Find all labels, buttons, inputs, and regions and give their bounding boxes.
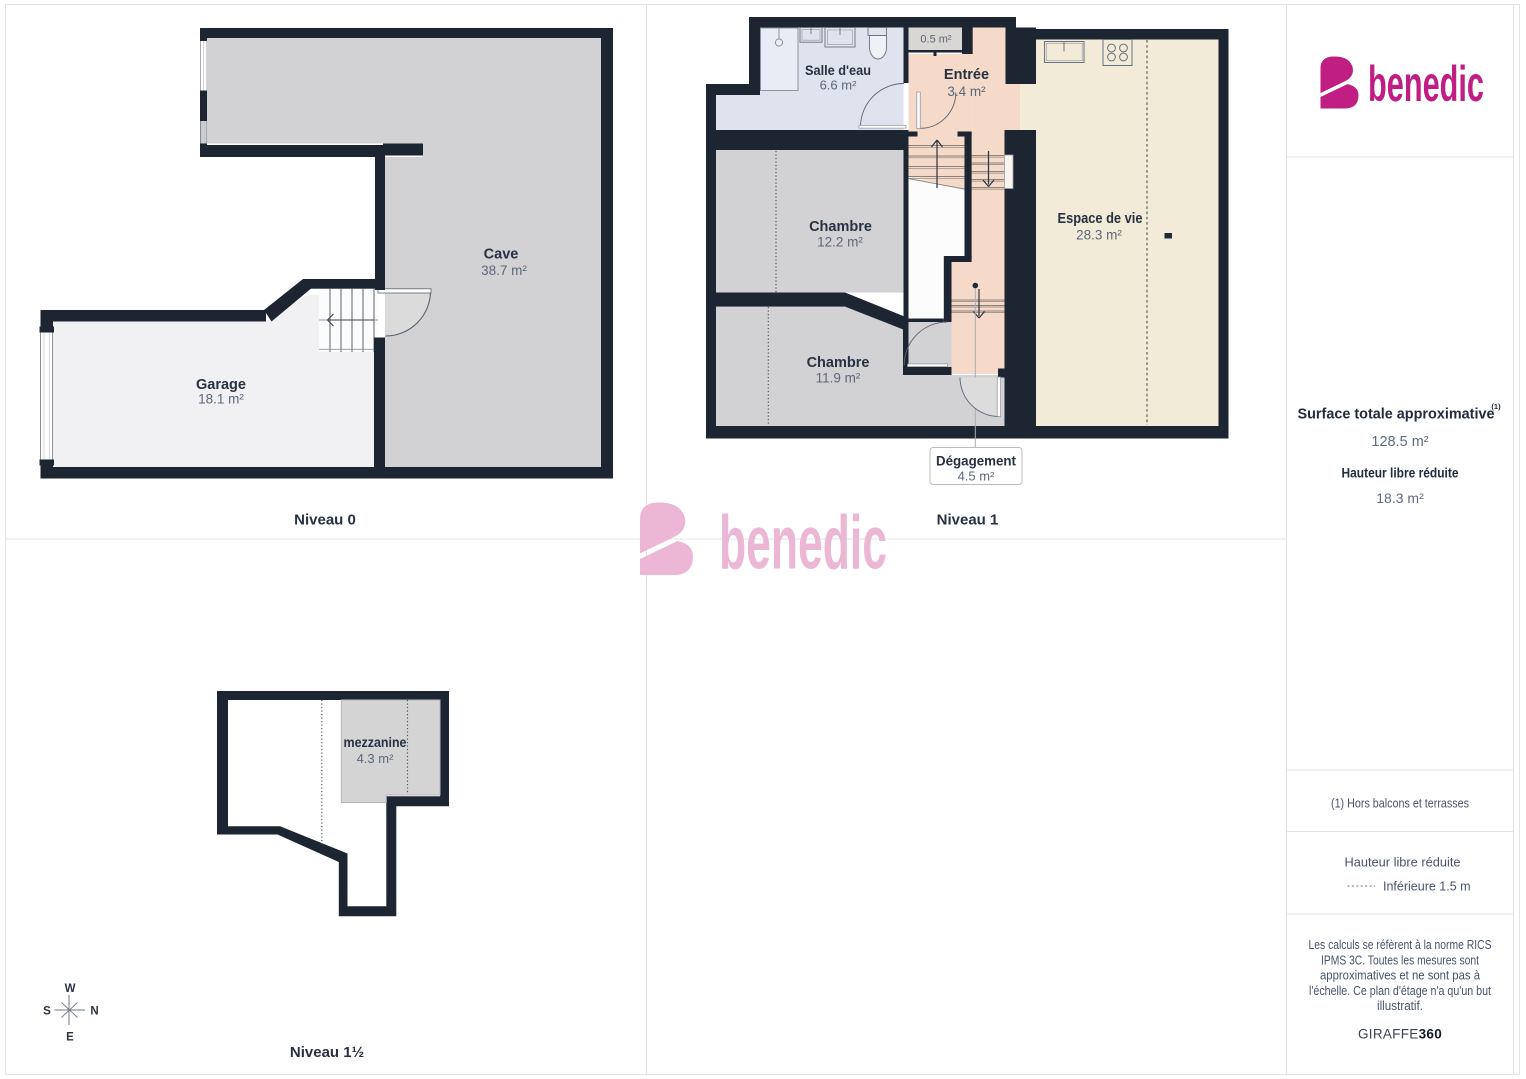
svg-text:18.3 m²: 18.3 m²	[1376, 490, 1424, 506]
svg-text:Niveau 1½: Niveau 1½	[290, 1044, 364, 1061]
svg-text:38.7 m²: 38.7 m²	[481, 263, 527, 278]
svg-text:128.5 m²: 128.5 m²	[1371, 434, 1428, 450]
svg-text:28.3 m²: 28.3 m²	[1076, 228, 1122, 243]
svg-text:Niveau 0: Niveau 0	[294, 512, 356, 529]
svg-text:Salle d'eau: Salle d'eau	[805, 63, 871, 78]
svg-text:3.4 m²: 3.4 m²	[947, 84, 986, 99]
svg-text:Niveau 1: Niveau 1	[937, 512, 999, 529]
svg-text:Espace de vie: Espace de vie	[1058, 211, 1143, 227]
svg-text:6.6 m²: 6.6 m²	[820, 78, 858, 93]
svg-text:(1) Hors balcons et terrasses: (1) Hors balcons et terrasses	[1331, 797, 1469, 811]
svg-text:benedic: benedic	[1368, 56, 1484, 112]
svg-text:4.3 m²: 4.3 m²	[357, 751, 395, 766]
svg-text:12.2 m²: 12.2 m²	[817, 235, 863, 250]
svg-text:GIRAFFE360: GIRAFFE360	[1358, 1027, 1442, 1042]
svg-text:Cave: Cave	[484, 247, 519, 263]
svg-text:S: S	[43, 1006, 51, 1018]
svg-text:mezzanine: mezzanine	[344, 734, 407, 750]
svg-text:(1): (1)	[1491, 402, 1501, 411]
svg-text:l'échelle. Ce plan d'étage n'a: l'échelle. Ce plan d'étage n'a qu'un but	[1309, 983, 1491, 998]
svg-text:Chambre: Chambre	[807, 355, 870, 371]
svg-text:benedic: benedic	[719, 501, 887, 586]
svg-text:E: E	[66, 1032, 74, 1044]
svg-text:illustratif.: illustratif.	[1377, 998, 1423, 1013]
svg-text:Surface totale approximative: Surface totale approximative	[1298, 407, 1495, 423]
svg-text:Chambre: Chambre	[809, 219, 872, 235]
svg-text:N: N	[90, 1006, 98, 1018]
svg-text:Entrée: Entrée	[944, 67, 989, 83]
svg-text:IPMS 3C. Toutes les mesures so: IPMS 3C. Toutes les mesures sont	[1321, 952, 1479, 967]
svg-text:Dégagement: Dégagement	[936, 453, 1016, 469]
svg-text:Les calculs se réfèrent à la n: Les calculs se réfèrent à la norme RICS	[1309, 937, 1492, 952]
svg-text:4.5 m²: 4.5 m²	[958, 469, 996, 484]
svg-text:11.9 m²: 11.9 m²	[816, 371, 861, 386]
svg-text:0.5 m²: 0.5 m²	[920, 34, 952, 46]
svg-text:Inférieure 1.5 m: Inférieure 1.5 m	[1383, 880, 1471, 894]
svg-text:18.1 m²: 18.1 m²	[198, 392, 244, 407]
svg-text:Hauteur libre réduite: Hauteur libre réduite	[1342, 466, 1459, 481]
svg-text:W: W	[65, 983, 76, 995]
svg-text:approximatives et ne sont pas: approximatives et ne sont pas à	[1320, 968, 1481, 983]
svg-text:Hauteur libre réduite: Hauteur libre réduite	[1345, 856, 1461, 870]
